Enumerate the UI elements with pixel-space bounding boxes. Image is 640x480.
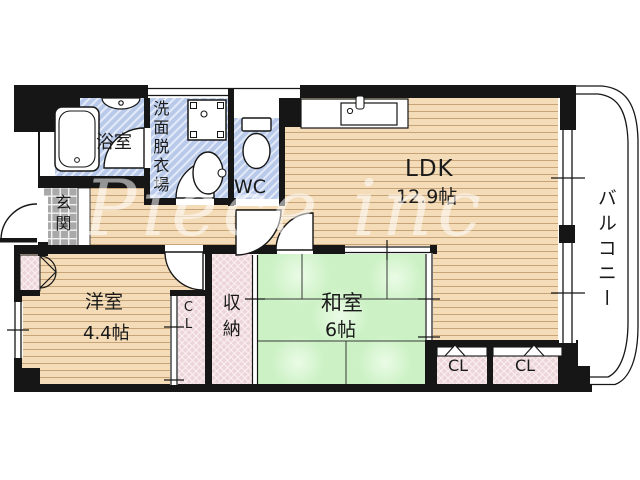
closet-folding-doors <box>437 345 562 356</box>
balcony-label: バルコニー <box>594 188 616 313</box>
closet-west-hatch <box>20 255 40 291</box>
entrance-label: 玄関 <box>52 194 70 236</box>
washroom-label: 洗面脱衣場 <box>150 100 168 195</box>
kitchen-counter <box>301 96 408 128</box>
floorplan-page: 浴室 洗面脱衣場 WC LDK 12.9帖 バルコニー 玄関 洋室 4.4帖 C… <box>0 0 640 480</box>
entrance-step <box>78 188 90 246</box>
bathroom-label: 浴室 <box>96 133 132 154</box>
closet-south2-label: CL <box>515 357 535 375</box>
ldk-floor-south <box>433 250 558 343</box>
storage-label: 収納 <box>219 293 240 345</box>
japanese-room-label: 和室 <box>321 291 363 315</box>
washing-machine-icon <box>188 100 226 140</box>
toilet-icon <box>242 118 271 169</box>
closet-west-label: CL <box>180 300 195 334</box>
western-room-size-label: 4.4帖 <box>83 324 130 345</box>
entrance-door-arc <box>0 204 37 243</box>
japanese-room-size-label: 6帖 <box>325 320 356 342</box>
ldk-label: LDK <box>405 156 454 182</box>
window-top <box>148 89 300 96</box>
wc-label: WC <box>234 177 266 199</box>
bathtub-icon <box>55 107 99 171</box>
ldk-size-label: 12.9帖 <box>396 187 457 209</box>
floorplan-drawing <box>0 0 640 480</box>
western-room-label: 洋室 <box>85 292 123 314</box>
hallway-floor <box>90 188 150 250</box>
closet-south1-label: CL <box>448 357 468 375</box>
